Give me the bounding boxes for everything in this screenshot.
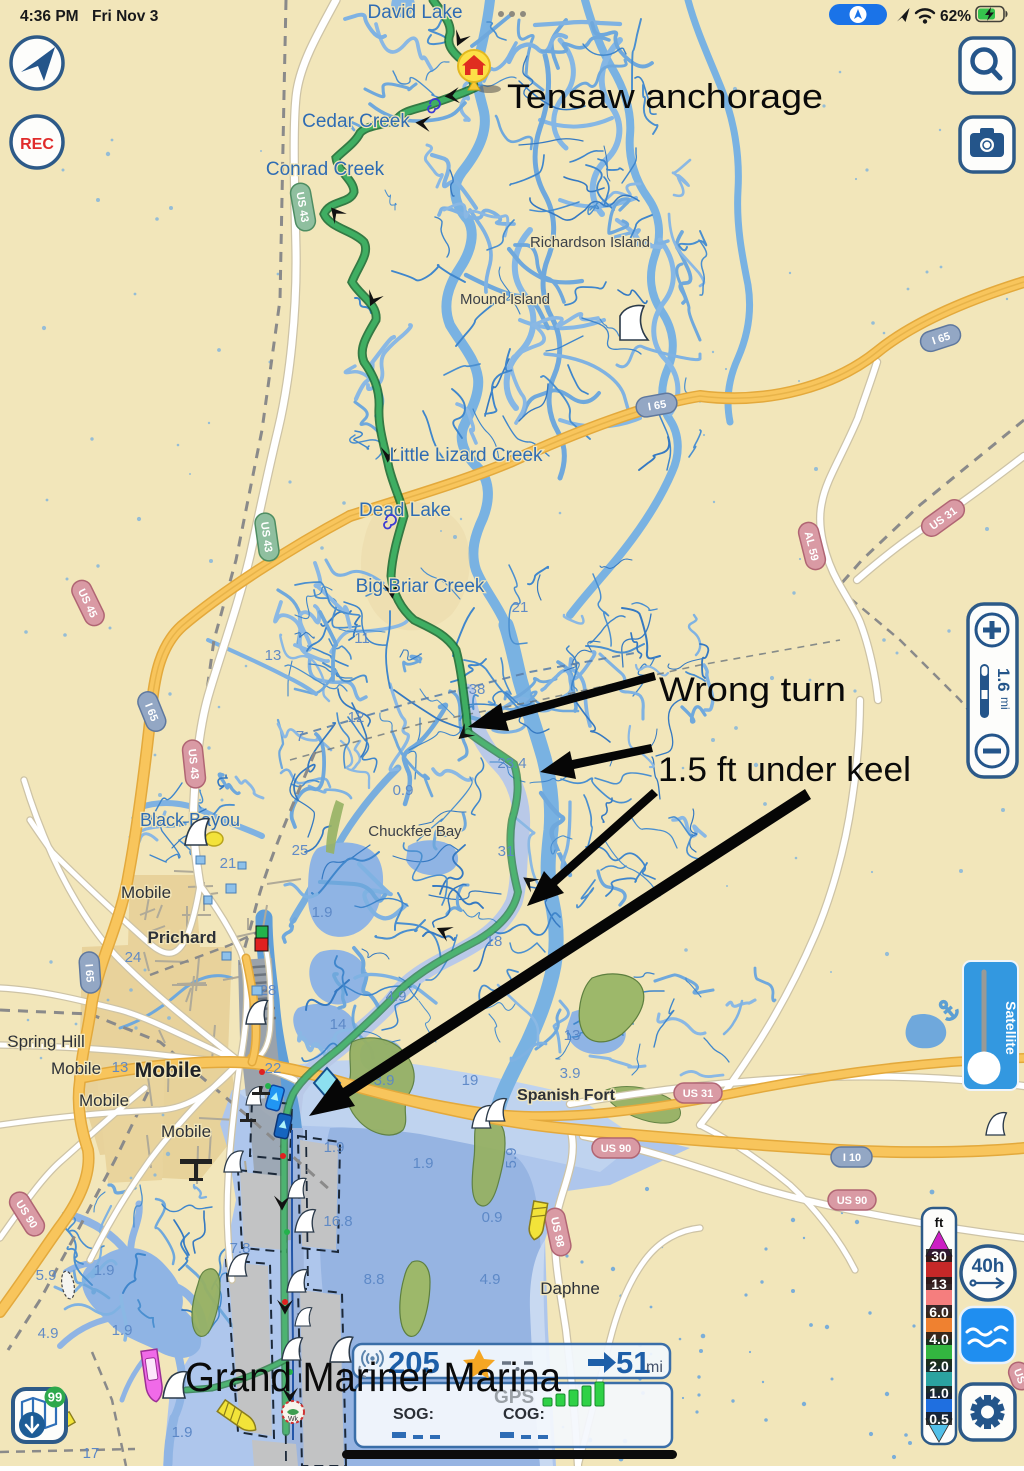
- svg-text:Prichard: Prichard: [148, 928, 217, 947]
- svg-text:11: 11: [354, 630, 370, 647]
- svg-text:COG:: COG:: [503, 1406, 545, 1423]
- svg-text:62%: 62%: [940, 8, 971, 25]
- svg-text:Wk: Wk: [288, 1416, 299, 1423]
- svg-text:16.8: 16.8: [323, 1213, 352, 1230]
- svg-text:Cedar Creek: Cedar Creek: [302, 111, 410, 132]
- svg-text:US 90: US 90: [837, 1195, 868, 1207]
- svg-text:5.9: 5.9: [503, 1148, 520, 1169]
- svg-text:Big Briar Creek: Big Briar Creek: [356, 576, 485, 597]
- svg-text:1.9: 1.9: [94, 1262, 115, 1279]
- svg-text:Mobile: Mobile: [161, 1122, 211, 1141]
- svg-text:13: 13: [265, 647, 282, 664]
- svg-text:1.9: 1.9: [413, 1155, 434, 1172]
- svg-text:1.9: 1.9: [172, 1424, 193, 1441]
- svg-text:17: 17: [83, 1445, 100, 1462]
- svg-text:3.9: 3.9: [560, 1065, 581, 1082]
- svg-text:13: 13: [931, 1276, 947, 1292]
- svg-text:SOG:: SOG:: [393, 1406, 434, 1423]
- svg-text:4.0: 4.0: [929, 1331, 949, 1347]
- svg-text:40h: 40h: [972, 1256, 1005, 1277]
- svg-text:Richardson Island: Richardson Island: [530, 234, 650, 251]
- svg-text:1.9: 1.9: [324, 1139, 345, 1156]
- svg-text:0.5: 0.5: [929, 1411, 949, 1427]
- svg-text:Mobile: Mobile: [135, 1059, 202, 1082]
- svg-text:12: 12: [348, 709, 365, 726]
- svg-text:24: 24: [125, 949, 142, 966]
- svg-text:99: 99: [48, 1390, 62, 1405]
- svg-text:US 31: US 31: [683, 1088, 714, 1100]
- svg-text:0.9: 0.9: [482, 1209, 503, 1226]
- svg-text:Mobile: Mobile: [121, 883, 171, 902]
- svg-text:38: 38: [469, 681, 486, 698]
- svg-text:1.9: 1.9: [312, 904, 333, 921]
- svg-text:30: 30: [931, 1248, 947, 1264]
- svg-text:Chuckfee Bay: Chuckfee Bay: [368, 823, 462, 840]
- svg-text:Spanish Fort: Spanish Fort: [517, 1087, 615, 1104]
- svg-text:31: 31: [498, 843, 515, 860]
- svg-text:Little Lizard Creek: Little Lizard Creek: [389, 445, 543, 466]
- svg-text:21: 21: [512, 599, 529, 616]
- svg-text:US 90: US 90: [601, 1143, 632, 1155]
- svg-text:7: 7: [296, 728, 304, 745]
- svg-text:mi: mi: [998, 697, 1012, 710]
- svg-text:Spring Hill: Spring Hill: [7, 1032, 84, 1051]
- svg-text:Conrad Creek: Conrad Creek: [266, 159, 385, 180]
- svg-text:Daphne: Daphne: [540, 1279, 600, 1298]
- svg-text:Wrong turn: Wrong turn: [659, 671, 846, 709]
- svg-text:Grand Mariner Marina: Grand Mariner Marina: [185, 1354, 561, 1400]
- svg-text:21: 21: [220, 855, 237, 872]
- svg-text:ft: ft: [935, 1215, 944, 1230]
- svg-text:18: 18: [486, 933, 503, 950]
- svg-text:David Lake: David Lake: [367, 2, 462, 23]
- svg-text:Mobile: Mobile: [79, 1091, 129, 1110]
- svg-text:13: 13: [564, 1027, 581, 1044]
- svg-text:5.9: 5.9: [36, 1267, 57, 1284]
- svg-text:Dead Lake: Dead Lake: [359, 500, 451, 521]
- svg-text:mi: mi: [646, 1359, 663, 1376]
- svg-text:4.9: 4.9: [386, 988, 407, 1005]
- svg-text:4:36 PM: 4:36 PM: [20, 8, 79, 25]
- svg-text:1.5 ft under keel: 1.5 ft under keel: [658, 751, 911, 789]
- svg-text:Tensaw anchorage: Tensaw anchorage: [507, 78, 823, 116]
- svg-text:13: 13: [112, 1059, 129, 1076]
- svg-text:Mound Island: Mound Island: [460, 291, 550, 308]
- svg-text:22: 22: [265, 1060, 282, 1077]
- svg-text:Mobile: Mobile: [51, 1059, 101, 1078]
- svg-text:4.9: 4.9: [480, 1271, 501, 1288]
- svg-text:1.9: 1.9: [112, 1322, 133, 1339]
- svg-text:6.0: 6.0: [929, 1304, 949, 1320]
- svg-text:23.4: 23.4: [497, 755, 526, 772]
- svg-text:I 10: I 10: [843, 1152, 861, 1164]
- svg-text:19: 19: [462, 1072, 479, 1089]
- svg-text:0.9: 0.9: [393, 782, 414, 799]
- svg-text:8.8: 8.8: [364, 1271, 385, 1288]
- svg-text:Fri Nov 3: Fri Nov 3: [92, 8, 159, 25]
- svg-text:Satellite: Satellite: [1003, 1001, 1019, 1055]
- svg-text:25: 25: [292, 842, 309, 859]
- svg-text:14: 14: [330, 1016, 347, 1033]
- svg-text:REC: REC: [20, 136, 54, 153]
- svg-text:2.0: 2.0: [929, 1358, 949, 1374]
- svg-text:4.9: 4.9: [38, 1325, 59, 1342]
- svg-text:1.6: 1.6: [994, 668, 1013, 692]
- svg-text:1.0: 1.0: [929, 1385, 949, 1401]
- svg-text:I 65: I 65: [82, 963, 95, 982]
